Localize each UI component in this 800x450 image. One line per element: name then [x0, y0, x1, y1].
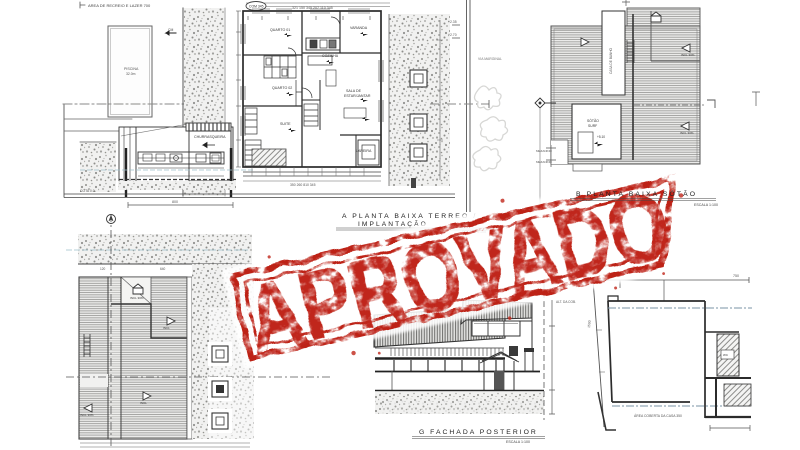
- svg-text:B PLANTA BAIXA SÓTÃO: B PLANTA BAIXA SÓTÃO: [576, 189, 697, 198]
- svg-text:MEZANINO: MEZANINO: [536, 160, 553, 164]
- svg-text:PISCINA: PISCINA: [124, 67, 139, 71]
- svg-text:MEZANINO: MEZANINO: [536, 149, 553, 153]
- svg-text:CHURRASQUEIRA: CHURRASQUEIRA: [194, 135, 226, 139]
- svg-text:VARANDA: VARANDA: [350, 26, 368, 30]
- svg-text:WC: WC: [723, 353, 729, 357]
- svg-text:350 260 810 345: 350 260 810 345: [290, 183, 316, 187]
- svg-text:SALA DE: SALA DE: [346, 89, 362, 93]
- svg-text:750: 750: [733, 274, 739, 278]
- svg-text:800: 800: [172, 200, 178, 204]
- svg-text:CASA DE BANHO: CASA DE BANHO: [609, 47, 613, 74]
- svg-text:INCL 30%: INCL 30%: [130, 296, 144, 300]
- svg-text:SUITE: SUITE: [280, 122, 291, 126]
- svg-text:COTA 0.0: COTA 0.0: [80, 189, 95, 193]
- svg-text:AREA DE RECREIO E LAZER 700: AREA DE RECREIO E LAZER 700: [88, 3, 151, 8]
- svg-text:1500: 1500: [587, 320, 592, 328]
- svg-text:G FACHADA POSTERIOR: G FACHADA POSTERIOR: [419, 429, 538, 436]
- svg-text:+5.10: +5.10: [597, 135, 605, 139]
- svg-text:QUARTO 02: QUARTO 02: [272, 86, 292, 90]
- svg-text:INCL 30%: INCL 30%: [681, 53, 695, 57]
- svg-text:INCL 30%: INCL 30%: [80, 413, 94, 417]
- svg-text:QUARTO 01: QUARTO 01: [270, 28, 290, 32]
- svg-text:LAREIRA: LAREIRA: [356, 149, 372, 153]
- svg-text:640: 640: [160, 267, 166, 271]
- svg-text:+2.35: +2.35: [448, 20, 457, 24]
- svg-text:+2.70: +2.70: [448, 33, 457, 37]
- svg-text:ÁREA COBERTA DA CASA 350: ÁREA COBERTA DA CASA 350: [634, 414, 682, 418]
- svg-text:VIA MARGINAL: VIA MARGINAL: [478, 57, 502, 61]
- svg-text:ESCALA 1:100: ESCALA 1:100: [506, 440, 530, 444]
- svg-text:INCL 30%: INCL 30%: [680, 131, 694, 135]
- svg-text:ESTAR/JANTAR: ESTAR/JANTAR: [344, 94, 371, 98]
- svg-text:321 150 345 207 11: 321 150 345 207 110 345: [292, 6, 333, 10]
- svg-text:COZINHA: COZINHA: [322, 54, 339, 58]
- svg-text:120: 120: [100, 267, 106, 271]
- svg-text:CM: CM: [168, 28, 173, 32]
- svg-text:COM 345: COM 345: [249, 5, 264, 9]
- svg-text:ESCALA 1:100: ESCALA 1:100: [694, 203, 718, 207]
- svg-text:SÓTÃO: SÓTÃO: [587, 118, 599, 123]
- svg-text:INCL: INCL: [163, 326, 170, 330]
- svg-text:SURF: SURF: [588, 124, 597, 128]
- svg-text:INCL: INCL: [140, 401, 147, 405]
- svg-text:32.0m: 32.0m: [126, 72, 136, 76]
